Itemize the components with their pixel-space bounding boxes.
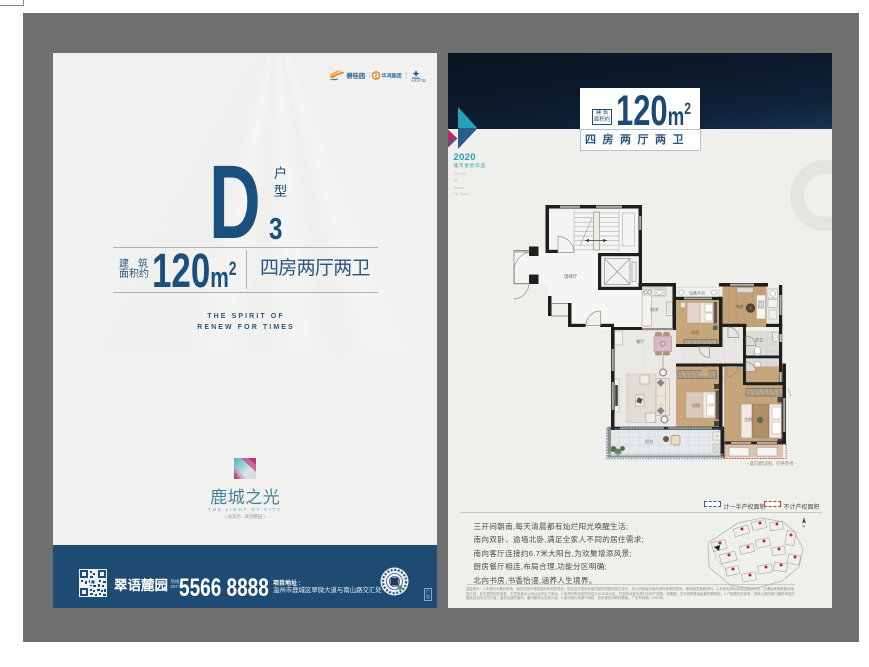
svg-text:N: N [802, 525, 805, 529]
svg-text:餐厅: 餐厅 [636, 338, 644, 345]
svg-text:次卧: 次卧 [692, 402, 700, 409]
svg-text:电梯厅: 电梯厅 [564, 273, 578, 280]
svg-text:华鸿集团: 华鸿集团 [382, 73, 402, 80]
svg-text:碧桂园: 碧桂园 [346, 72, 366, 80]
svg-text:次卫: 次卫 [755, 337, 763, 343]
svg-text:书房: 书房 [735, 303, 743, 310]
svg-text:次卧: 次卧 [691, 329, 699, 336]
svg-text:阳台: 阳台 [645, 438, 653, 445]
svg-text:主卧: 主卧 [744, 416, 752, 423]
svg-text:厨房: 厨房 [650, 306, 658, 313]
svg-text:大家房产集团: 大家房产集团 [411, 78, 426, 82]
svg-text:设备平台: 设备平台 [689, 290, 705, 296]
